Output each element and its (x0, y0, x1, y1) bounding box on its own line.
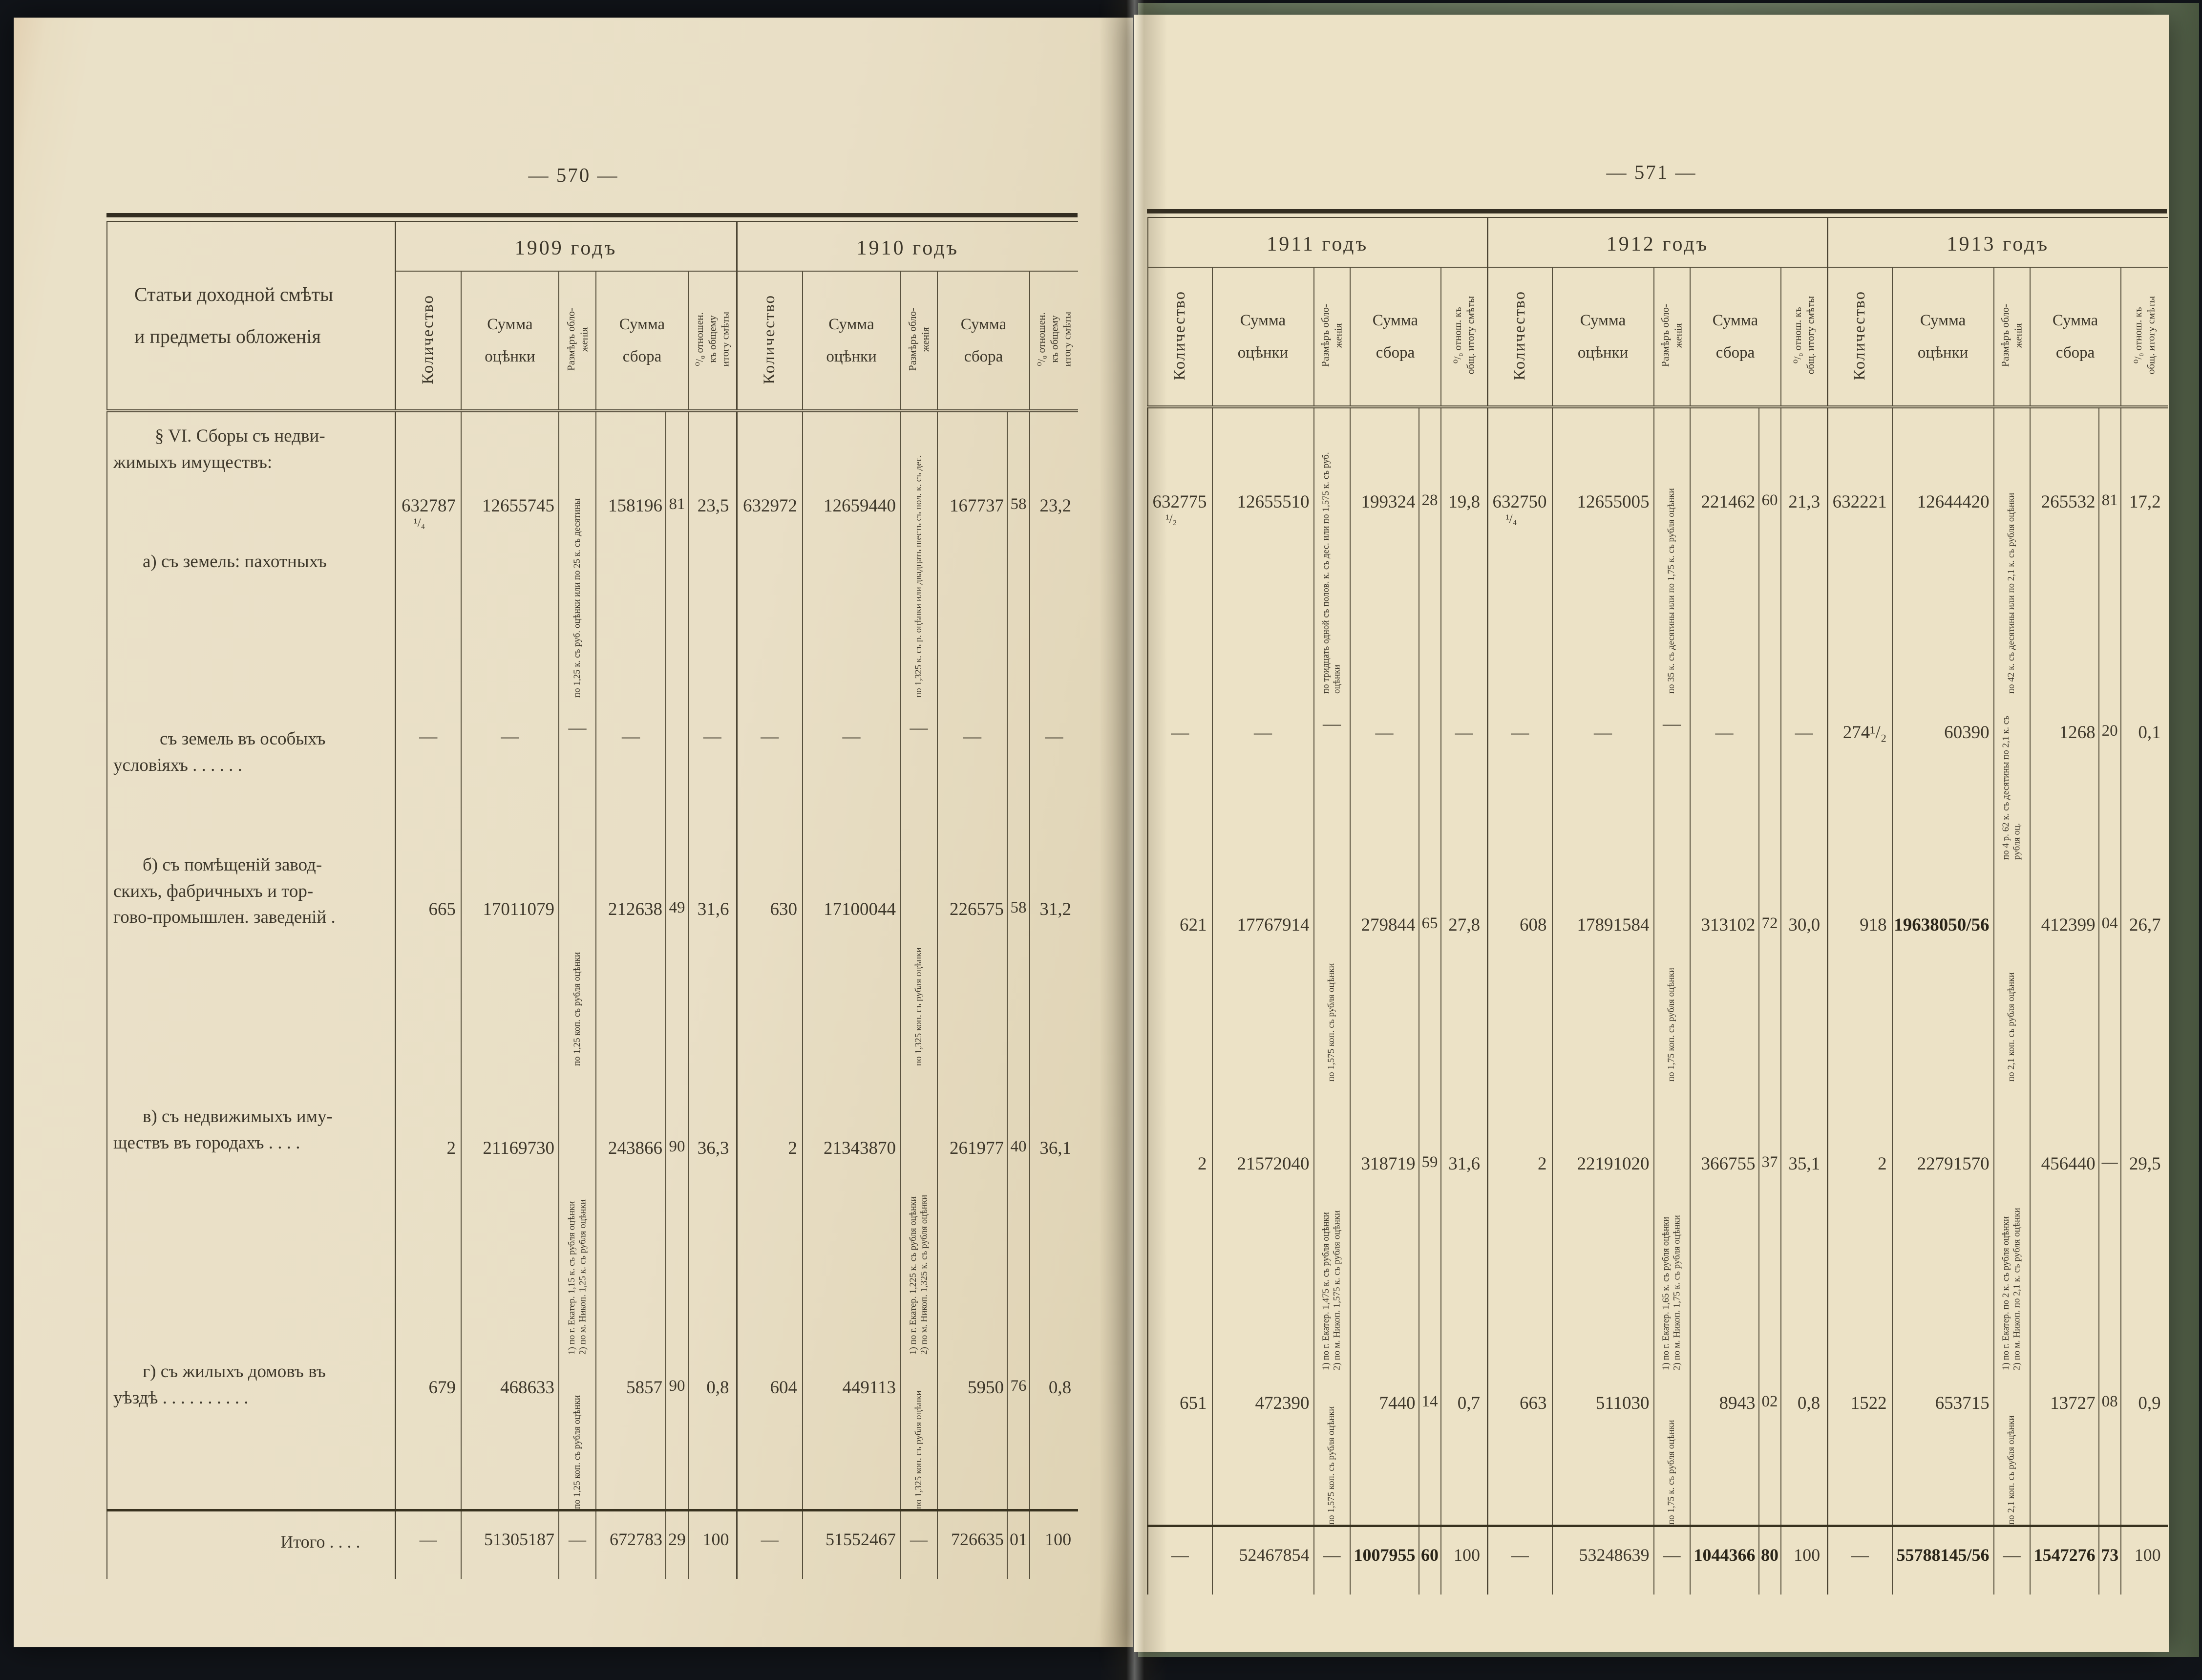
row-label-itogo: Итого . . . . (107, 1510, 395, 1579)
col-header-pct-1913: ⁰/₀ отнош. къ общ. итогу смѣты (2121, 267, 2168, 407)
cell-v-urban-1910-assessment: 21343870 (803, 1091, 900, 1355)
cell-section-a-1911-levy-kop: 28 (1419, 407, 1441, 694)
col-header-assessment-1912: Сумма оцѣнки (1552, 267, 1654, 407)
cell-b-premises-1913-pct: 26,7 (2121, 860, 2168, 1106)
cell-itogo-1911-assessment: 52467854 (1212, 1526, 1314, 1595)
cell-g-houses-1909-pct: 0,8 (688, 1355, 737, 1510)
col-header-qty-1910: Количество (737, 271, 803, 411)
cell-itogo-1913-qty: — (1828, 1526, 1892, 1595)
row-label-section-a: § VI. Сборы съ недви-жимыхъ имуществъ:а)… (107, 411, 395, 698)
cell-b-premises-1912-levy-rub: 313102 (1690, 860, 1759, 1106)
cell-v-urban-1909-levy-kop: 90 (666, 1091, 688, 1355)
cell-g-houses-1911-pct: 0,7 (1441, 1370, 1488, 1526)
cell-v-urban-1911-qty: 2 (1148, 1106, 1212, 1370)
cell-itogo-1910-pct: 100 (1030, 1510, 1078, 1579)
cell-itogo-1911-qty: — (1148, 1526, 1212, 1595)
cell-v-urban-1909-pct: 36,3 (688, 1091, 737, 1355)
col-header-assessment-1911: Сумма оцѣнки (1212, 267, 1314, 407)
cell-g-houses-1910-levy-rub: 5950 (937, 1355, 1007, 1510)
row-v-urban: 2215720401) по г. Екатер. 1,475 к. съ ру… (1148, 1106, 2168, 1370)
tbody-right: 632775¹/₂12655510по тридцать одной съ по… (1148, 407, 2168, 1595)
cell-section-a-1909-levy-kop: 81 (666, 411, 688, 698)
row-itogo: —52467854—100795560100—53248639—10443668… (1148, 1526, 2168, 1595)
cell-b-premises-1913-levy-rub: 412399 (2030, 860, 2099, 1106)
revenue-table-1909-1910: Статьи доходной смѣты и предметы обложен… (106, 221, 1078, 1579)
cell-b-premises-1913-levy-kop: 04 (2099, 860, 2121, 1106)
year-header-1909: 1909 годъ (395, 221, 737, 271)
cell-section-a-1910-qty: 632972 (737, 411, 803, 698)
cell-v-urban-1911-levy-rub: 318719 (1350, 1106, 1419, 1370)
cell-v-urban-1911-levy-kop: 59 (1419, 1106, 1441, 1370)
cell-g-houses-1910-levy-kop: 76 (1007, 1355, 1030, 1510)
cell-special-1910-levy-kop (1007, 698, 1030, 844)
cell-special-1911-pct: — (1441, 694, 1488, 860)
cell-v-urban-1909-rate: 1) по г. Екатер. 1,15 к. съ рубля оцѣнки… (559, 1091, 596, 1355)
cell-b-premises-1910-qty: 630 (737, 844, 803, 1091)
cell-special-1912-assessment: — (1552, 694, 1654, 860)
cell-itogo-1913-assessment: 55788145/56 (1892, 1526, 1994, 1595)
cell-section-a-1913-levy-rub: 265532 (2030, 407, 2099, 694)
cell-v-urban-1913-levy-rub: 456440 (2030, 1106, 2099, 1370)
cell-v-urban-1913-rate: 1) по г. Екатер. по 2 к. съ рубля оцѣнки… (1994, 1106, 2030, 1370)
cell-itogo-1913-rate: — (1994, 1526, 2030, 1595)
cell-itogo-1912-levy-kop: 80 (1759, 1526, 1781, 1595)
row-v-urban: в) съ недвижимыхъ иму-ществъ въ городахъ… (107, 1091, 1078, 1355)
row-label-line: в) съ недвижимыхъ иму- (107, 1104, 395, 1130)
cell-special-1910-pct: — (1030, 698, 1078, 844)
col-header-pct-1912: ⁰/₀ отнош. къ общ. итогу смѣты (1781, 267, 1828, 407)
cell-section-a-1910-assessment: 12659440 (803, 411, 900, 698)
row-label-line: ществъ въ городахъ . . . . (107, 1130, 395, 1156)
cell-g-houses-1909-rate: по 1,25 коп. съ рубля оцѣнки (559, 1355, 596, 1510)
col-header-pct-1909: ⁰/₀ отношен. къ общему итогу смѣты (688, 271, 737, 411)
cell-g-houses-1910-rate: по 1,325 коп. съ рубля оцѣнки (900, 1355, 937, 1510)
table-head-right: 1911 годъ 1912 годъ 1913 годъ Количество… (1148, 217, 2168, 407)
cell-b-premises-1911-pct: 27,8 (1441, 860, 1488, 1106)
cell-v-urban-1912-assessment: 22191020 (1552, 1106, 1654, 1370)
cell-special-1909-levy-kop (666, 698, 688, 844)
cell-special-1912-pct: — (1781, 694, 1828, 860)
row-label-line: съ земель въ особыхъ (107, 726, 395, 752)
cell-itogo-1911-levy-kop: 60 (1419, 1526, 1441, 1595)
tbody-left: § VI. Сборы съ недви-жимыхъ имуществъ:а)… (107, 411, 1078, 1579)
stub-line-2: и предметы обложенія (107, 325, 395, 348)
col-header-assessment-1913: Сумма оцѣнки (1892, 267, 1994, 407)
row-label-line: а) съ земель: пахотныхъ (107, 549, 395, 575)
cell-b-premises-1911-assessment: 17767914 (1212, 860, 1314, 1106)
row-label-line: г) съ жилыхъ домовъ въ (107, 1359, 395, 1385)
cell-itogo-1911-pct: 100 (1441, 1526, 1488, 1595)
col-header-pct-1911: ⁰/₀ отнош. къ общ. итогу смѣты (1441, 267, 1488, 407)
column-header-row-right: Количество Сумма оцѣнки Размѣръ обло- же… (1148, 267, 2168, 407)
cell-b-premises-1911-levy-kop: 65 (1419, 860, 1441, 1106)
cell-special-1912-qty: — (1488, 694, 1552, 860)
cell-itogo-1912-rate: — (1654, 1526, 1690, 1595)
row-section-a: 632775¹/₂12655510по тридцать одной съ по… (1148, 407, 2168, 694)
cell-v-urban-1910-pct: 36,1 (1030, 1091, 1078, 1355)
cell-v-urban-1912-levy-rub: 366755 (1690, 1106, 1759, 1370)
cell-b-premises-1911-qty: 621 (1148, 860, 1212, 1106)
cell-g-houses-1909-assessment: 468633 (461, 1355, 559, 1510)
cell-section-a-1913-assessment: 12644420 (1892, 407, 1994, 694)
cell-special-1911-levy-rub: — (1350, 694, 1419, 860)
cell-b-premises-1910-levy-rub: 226575 (937, 844, 1007, 1091)
cell-special-1913-pct: 0,1 (2121, 694, 2168, 860)
row-b-premises: б) съ помѣщеній завод-скихъ, фабричныхъ … (107, 844, 1078, 1091)
cell-section-a-1911-levy-rub: 199324 (1350, 407, 1419, 694)
cell-special-1910-qty: — (737, 698, 803, 844)
row-label-line: б) съ помѣщеній завод- (107, 852, 395, 878)
col-header-assessment-1909: Сумма оцѣнки (461, 271, 559, 411)
col-header-rate-1909: Размѣръ обло- женія (559, 271, 596, 411)
cell-g-houses-1911-levy-kop: 14 (1419, 1370, 1441, 1526)
col-header-levy-1913: Сумма сбора (2030, 267, 2121, 407)
cell-section-a-1912-pct: 21,3 (1781, 407, 1828, 694)
cell-section-a-1910-pct: 23,2 (1030, 411, 1078, 698)
cell-itogo-1909-rate: — (559, 1510, 596, 1579)
col-header-assessment-1910: Сумма оцѣнки (803, 271, 900, 411)
cell-g-houses-1912-rate: по 1,75 к. съ рубля оцѣнки (1654, 1370, 1690, 1526)
table-head-left: Статьи доходной смѣты и предметы обложен… (107, 221, 1078, 411)
cell-itogo-1909-qty: — (395, 1510, 461, 1579)
cell-itogo-1911-rate: — (1314, 1526, 1350, 1595)
cell-section-a-1910-levy-kop: 58 (1007, 411, 1030, 698)
cell-v-urban-1911-rate: 1) по г. Екатер. 1,475 к. съ рубля оцѣнк… (1314, 1106, 1350, 1370)
cell-special-1910-rate: — (900, 698, 937, 844)
row-special: ——————————274¹/₂60390по 4 р. 62 к. съ де… (1148, 694, 2168, 860)
page-number-571: — 571 — (1134, 160, 2169, 184)
cell-special-1911-levy-kop (1419, 694, 1441, 860)
cell-itogo-1910-levy-kop: 01 (1007, 1510, 1030, 1579)
cell-b-premises-1911-rate: по 1,575 коп. съ рубля оцѣнки (1314, 860, 1350, 1106)
cell-g-houses-1913-rate: по 2,1 коп. съ рубля оцѣнки (1994, 1370, 2030, 1526)
cell-special-1911-qty: — (1148, 694, 1212, 860)
cell-g-houses-1912-qty: 663 (1488, 1370, 1552, 1526)
cell-special-1912-levy-rub: — (1690, 694, 1759, 860)
page-571: — 571 — 1911 годъ 1912 годъ 1913 годъ Ко… (1134, 15, 2169, 1652)
cell-b-premises-1912-levy-kop: 72 (1759, 860, 1781, 1106)
scanned-book-spread: — 570 — Статьи доходной смѣты и предметы… (0, 0, 2202, 1680)
cell-section-a-1912-assessment: 12655005 (1552, 407, 1654, 694)
cell-v-urban-1911-assessment: 21572040 (1212, 1106, 1314, 1370)
cell-v-urban-1909-levy-rub: 243866 (596, 1091, 666, 1355)
cell-b-premises-1909-levy-rub: 212638 (596, 844, 666, 1091)
cell-b-premises-1913-assessment: 19638050/56 (1892, 860, 1994, 1106)
cell-v-urban-1912-rate: 1) по г. Екатер. 1,65 к. съ рубля оцѣнки… (1654, 1106, 1690, 1370)
cell-itogo-1910-qty: — (737, 1510, 803, 1579)
row-label-line: уѣздѣ . . . . . . . . . . (107, 1385, 395, 1411)
cell-g-houses-1912-assessment: 511030 (1552, 1370, 1654, 1526)
row-g-houses: г) съ жилыхъ домовъ въуѣздѣ . . . . . . … (107, 1355, 1078, 1510)
cell-section-a-1913-qty: 632221 (1828, 407, 1892, 694)
cell-special-1909-rate: — (559, 698, 596, 844)
cell-section-a-1911-rate: по тридцать одной съ полов. к. съ дес. и… (1314, 407, 1350, 694)
cell-special-1909-assessment: — (461, 698, 559, 844)
year-header-row-left: Статьи доходной смѣты и предметы обложен… (107, 221, 1078, 271)
cell-section-a-1910-levy-rub: 167737 (937, 411, 1007, 698)
row-label-line: § VI. Сборы съ недви- (107, 423, 395, 449)
cell-section-a-1912-levy-kop: 60 (1759, 407, 1781, 694)
row-label-b-premises: б) съ помѣщеній завод-скихъ, фабричныхъ … (107, 844, 395, 1091)
cell-g-houses-1912-levy-rub: 8943 (1690, 1370, 1759, 1526)
col-header-qty-1911: Количество (1148, 267, 1212, 407)
cell-section-a-1911-qty: 632775¹/₂ (1148, 407, 1212, 694)
cell-g-houses-1909-qty: 679 (395, 1355, 461, 1510)
cell-v-urban-1913-qty: 2 (1828, 1106, 1892, 1370)
row-label-line: условіяхъ . . . . . . (107, 752, 395, 779)
cell-b-premises-1913-qty: 918 (1828, 860, 1892, 1106)
cell-g-houses-1913-levy-rub: 13727 (2030, 1370, 2099, 1526)
cell-itogo-1910-rate: — (900, 1510, 937, 1579)
cell-b-premises-1913-rate: по 2,1 коп. съ рубля оцѣнки (1994, 860, 2030, 1106)
row-label-special: съ земель въ особыхъусловіяхъ . . . . . … (107, 698, 395, 844)
cell-itogo-1913-pct: 100 (2121, 1526, 2168, 1595)
col-header-qty-1912: Количество (1488, 267, 1552, 407)
col-header-qty-1913: Количество (1828, 267, 1892, 407)
col-header-levy-1912: Сумма сбора (1690, 267, 1781, 407)
cell-b-premises-1912-rate: по 1,75 коп. съ рубля оцѣнки (1654, 860, 1690, 1106)
cell-special-1912-rate: — (1654, 694, 1690, 860)
cell-section-a-1909-rate: по 1,25 к. съ руб. оцѣнки или по 25 к. с… (559, 411, 596, 698)
row-itogo: Итого . . . .—51305187—67278329100—51552… (107, 1510, 1078, 1579)
cell-g-houses-1910-qty: 604 (737, 1355, 803, 1510)
cell-v-urban-1910-levy-rub: 261977 (937, 1091, 1007, 1355)
cell-section-a-1912-levy-rub: 221462 (1690, 407, 1759, 694)
cell-section-a-1909-qty: 632787¹/₄ (395, 411, 461, 698)
cell-section-a-1913-rate: по 42 к. съ десятины или по 2,1 к. съ ру… (1994, 407, 2030, 694)
table-wrap-right: 1911 годъ 1912 годъ 1913 годъ Количество… (1147, 209, 2167, 1595)
cell-g-houses-1909-levy-rub: 5857 (596, 1355, 666, 1510)
cell-b-premises-1909-assessment: 17011079 (461, 844, 559, 1091)
cell-b-premises-1909-rate: по 1,25 коп. съ рубля оцѣнки (559, 844, 596, 1091)
col-header-rate-1910: Размѣръ обло- женія (900, 271, 937, 411)
cell-v-urban-1912-pct: 35,1 (1781, 1106, 1828, 1370)
cell-itogo-1910-levy-rub: 726635 (937, 1510, 1007, 1579)
cell-g-houses-1911-assessment: 472390 (1212, 1370, 1314, 1526)
cell-special-1913-levy-rub: 1268 (2030, 694, 2099, 860)
cell-g-houses-1911-levy-rub: 7440 (1350, 1370, 1419, 1526)
cell-g-houses-1913-qty: 1522 (1828, 1370, 1892, 1526)
cell-b-premises-1911-levy-rub: 279844 (1350, 860, 1419, 1106)
cell-v-urban-1910-levy-kop: 40 (1007, 1091, 1030, 1355)
cell-v-urban-1911-pct: 31,6 (1441, 1106, 1488, 1370)
cell-section-a-1913-levy-kop: 81 (2099, 407, 2121, 694)
row-label-v-urban: в) съ недвижимыхъ иму-ществъ въ городахъ… (107, 1091, 395, 1355)
stub-line-1: Статьи доходной смѣты (107, 283, 395, 306)
cell-special-1910-assessment: — (803, 698, 900, 844)
cell-b-premises-1910-assessment: 17100044 (803, 844, 900, 1091)
cell-section-a-1913-pct: 17,2 (2121, 407, 2168, 694)
cell-special-1913-rate: по 4 р. 62 к. съ десятины по 2,1 к. съ р… (1994, 694, 2030, 860)
cell-v-urban-1912-qty: 2 (1488, 1106, 1552, 1370)
col-header-levy-1910: Сумма сбора (937, 271, 1030, 411)
cell-section-a-1911-pct: 19,8 (1441, 407, 1488, 694)
page-570: — 570 — Статьи доходной смѣты и предметы… (14, 18, 1133, 1647)
cell-g-houses-1913-levy-kop: 08 (2099, 1370, 2121, 1526)
cell-v-urban-1909-assessment: 21169730 (461, 1091, 559, 1355)
cell-itogo-1909-levy-kop: 29 (666, 1510, 688, 1579)
cell-b-premises-1909-qty: 665 (395, 844, 461, 1091)
cell-b-premises-1910-rate: по 1,325 коп. съ рубля оцѣнки (900, 844, 937, 1091)
cell-section-a-1910-rate: по 1,325 к. съ р. оцѣнки или двадцать ше… (900, 411, 937, 698)
cell-g-houses-1911-qty: 651 (1148, 1370, 1212, 1526)
cell-section-a-1909-levy-rub: 158196 (596, 411, 666, 698)
cell-itogo-1911-levy-rub: 1007955 (1350, 1526, 1419, 1595)
cell-special-1913-levy-kop: 20 (2099, 694, 2121, 860)
cell-itogo-1913-levy-kop: 73 (2099, 1526, 2121, 1595)
revenue-table-1911-1913: 1911 годъ 1912 годъ 1913 годъ Количество… (1147, 217, 2168, 1595)
table-wrap-left: Статьи доходной смѣты и предметы обложен… (106, 213, 1078, 1579)
cell-itogo-1909-levy-rub: 672783 (596, 1510, 666, 1579)
cell-g-houses-1910-pct: 0,8 (1030, 1355, 1078, 1510)
col-header-levy-1911: Сумма сбора (1350, 267, 1441, 407)
row-label-line: гово-промышлен. заведеній . (107, 904, 395, 931)
row-label-g-houses: г) съ жилыхъ домовъ въуѣздѣ . . . . . . … (107, 1355, 395, 1510)
cell-v-urban-1913-assessment: 22791570 (1892, 1106, 1994, 1370)
year-header-1911: 1911 годъ (1148, 217, 1488, 267)
cell-section-a-1912-qty: 632750¹/₄ (1488, 407, 1552, 694)
col-header-rate-1911: Размѣръ обло- женія (1314, 267, 1350, 407)
row-special: съ земель въ особыхъусловіяхъ . . . . . … (107, 698, 1078, 844)
cell-g-houses-1912-pct: 0,8 (1781, 1370, 1828, 1526)
cell-v-urban-1913-pct: 29,5 (2121, 1106, 2168, 1370)
cell-special-1911-rate: — (1314, 694, 1350, 860)
cell-itogo-1912-levy-rub: 1044366 (1690, 1526, 1759, 1595)
cell-itogo-1912-pct: 100 (1781, 1526, 1828, 1595)
cell-b-premises-1912-assessment: 17891584 (1552, 860, 1654, 1106)
cell-special-1909-levy-rub: — (596, 698, 666, 844)
cell-special-1910-levy-rub: — (937, 698, 1007, 844)
row-label-line: Итого . . . . (107, 1529, 395, 1554)
year-header-1910: 1910 годъ (737, 221, 1078, 271)
col-header-qty-1909: Количество (395, 271, 461, 411)
col-header-rate-1912: Размѣръ обло- женія (1654, 267, 1690, 407)
row-label-line: жимыхъ имуществъ: (107, 449, 395, 476)
cell-v-urban-1909-qty: 2 (395, 1091, 461, 1355)
cell-special-1909-qty: — (395, 698, 461, 844)
cell-section-a-1909-assessment: 12655745 (461, 411, 559, 698)
row-section-a: § VI. Сборы съ недви-жимыхъ имуществъ:а)… (107, 411, 1078, 698)
cell-g-houses-1909-levy-kop: 90 (666, 1355, 688, 1510)
cell-itogo-1912-assessment: 53248639 (1552, 1526, 1654, 1595)
cell-special-1911-assessment: — (1212, 694, 1314, 860)
cell-b-premises-1910-pct: 31,2 (1030, 844, 1078, 1091)
cell-g-houses-1913-pct: 0,9 (2121, 1370, 2168, 1526)
cell-itogo-1909-pct: 100 (688, 1510, 737, 1579)
cell-b-premises-1910-levy-kop: 58 (1007, 844, 1030, 1091)
cell-special-1913-assessment: 60390 (1892, 694, 1994, 860)
cell-special-1912-levy-kop (1759, 694, 1781, 860)
cell-section-a-1911-assessment: 12655510 (1212, 407, 1314, 694)
cell-b-premises-1912-pct: 30,0 (1781, 860, 1828, 1106)
cell-section-a-1912-rate: по 35 к. съ десятины или по 1,75 к. съ р… (1654, 407, 1690, 694)
cell-b-premises-1912-qty: 608 (1488, 860, 1552, 1106)
cell-b-premises-1909-levy-kop: 49 (666, 844, 688, 1091)
cell-v-urban-1910-qty: 2 (737, 1091, 803, 1355)
cell-section-a-1909-pct: 23,5 (688, 411, 737, 698)
col-header-rate-1913: Размѣръ обло- женія (1994, 267, 2030, 407)
cell-itogo-1913-levy-rub: 1547276 (2030, 1526, 2099, 1595)
col-header-pct-1910: ⁰/₀ отношен. къ общему итогу смѣты (1030, 271, 1078, 411)
year-header-1912: 1912 годъ (1488, 217, 1828, 267)
cell-special-1913-qty: 274¹/₂ (1828, 694, 1892, 860)
row-label-line: скихъ, фабричныхъ и тор- (107, 878, 395, 905)
cell-b-premises-1909-pct: 31,6 (688, 844, 737, 1091)
col-header-levy-1909: Сумма сбора (596, 271, 688, 411)
cell-itogo-1912-qty: — (1488, 1526, 1552, 1595)
cell-v-urban-1912-levy-kop: 37 (1759, 1106, 1781, 1370)
cell-v-urban-1913-levy-kop: — (2099, 1106, 2121, 1370)
stub-header: Статьи доходной смѣты и предметы обложен… (107, 221, 395, 411)
cell-g-houses-1910-assessment: 449113 (803, 1355, 900, 1510)
year-header-1913: 1913 годъ (1828, 217, 2168, 267)
cell-v-urban-1910-rate: 1) по г. Екатер. 1,225 к. съ рубля оцѣнк… (900, 1091, 937, 1355)
page-number-570: — 570 — (14, 163, 1133, 187)
cell-special-1909-pct: — (688, 698, 737, 844)
row-b-premises: 62117767914по 1,575 коп. съ рубля оцѣнки… (1148, 860, 2168, 1106)
cell-itogo-1909-assessment: 51305187 (461, 1510, 559, 1579)
cell-g-houses-1911-rate: по 1,575 коп. съ рубля оцѣнки (1314, 1370, 1350, 1526)
row-g-houses: 651472390по 1,575 коп. съ рубля оцѣнки74… (1148, 1370, 2168, 1526)
cell-itogo-1910-assessment: 51552467 (803, 1510, 900, 1579)
cell-g-houses-1913-assessment: 653715 (1892, 1370, 1994, 1526)
cell-g-houses-1912-levy-kop: 02 (1759, 1370, 1781, 1526)
year-header-row-right: 1911 годъ 1912 годъ 1913 годъ (1148, 217, 2168, 267)
